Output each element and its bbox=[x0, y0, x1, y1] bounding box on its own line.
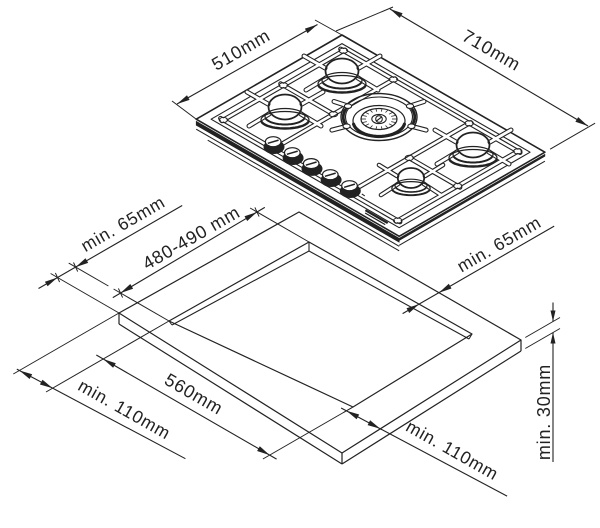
svg-text:min. 30mm: min. 30mm bbox=[534, 364, 554, 460]
